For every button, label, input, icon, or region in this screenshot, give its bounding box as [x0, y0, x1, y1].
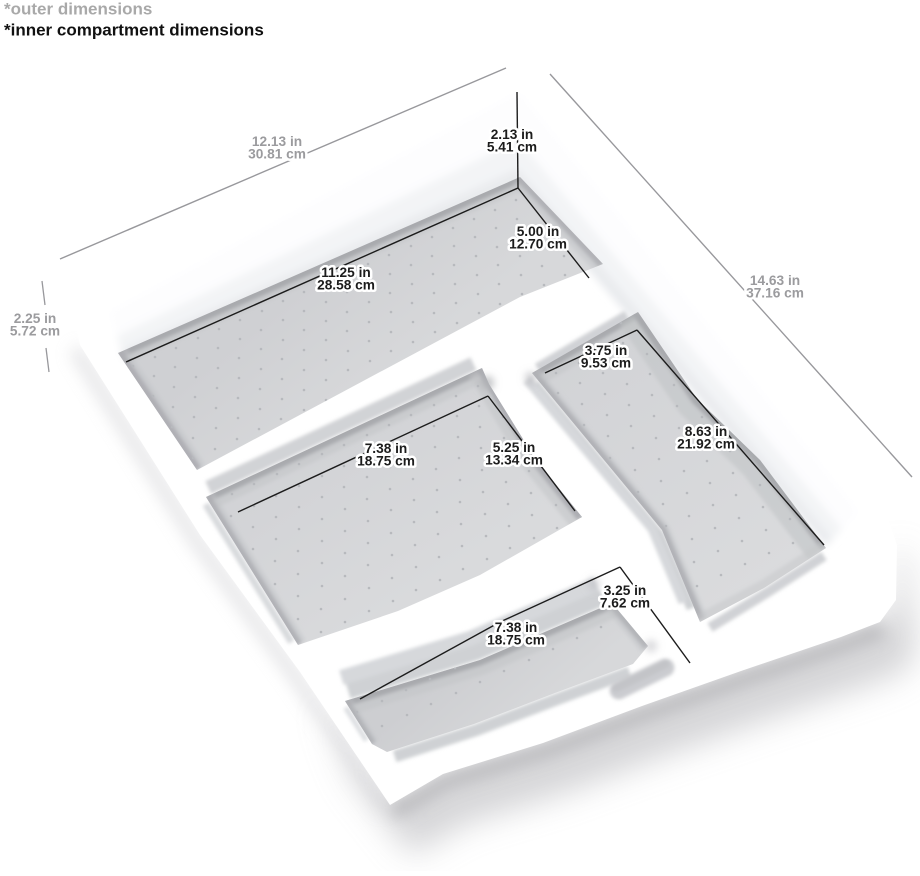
svg-text:5.41 cm: 5.41 cm	[487, 139, 537, 154]
svg-text:9.53 cm: 9.53 cm	[581, 355, 631, 370]
svg-text:18.75 cm: 18.75 cm	[357, 453, 415, 468]
svg-text:*outer dimensions: *outer dimensions	[4, 0, 152, 19]
svg-text:12.70 cm: 12.70 cm	[509, 236, 567, 251]
svg-text:7.62 cm: 7.62 cm	[600, 595, 650, 610]
svg-text:13.34 cm: 13.34 cm	[485, 452, 543, 467]
svg-text:*inner compartment dimensions: *inner compartment dimensions	[4, 21, 264, 40]
svg-text:28.58 cm: 28.58 cm	[317, 277, 375, 292]
svg-text:5.72 cm: 5.72 cm	[10, 323, 60, 338]
svg-text:37.16 cm: 37.16 cm	[746, 285, 804, 300]
svg-text:30.81 cm: 30.81 cm	[248, 146, 306, 161]
svg-text:21.92 cm: 21.92 cm	[677, 436, 735, 451]
svg-text:18.75 cm: 18.75 cm	[487, 632, 545, 647]
